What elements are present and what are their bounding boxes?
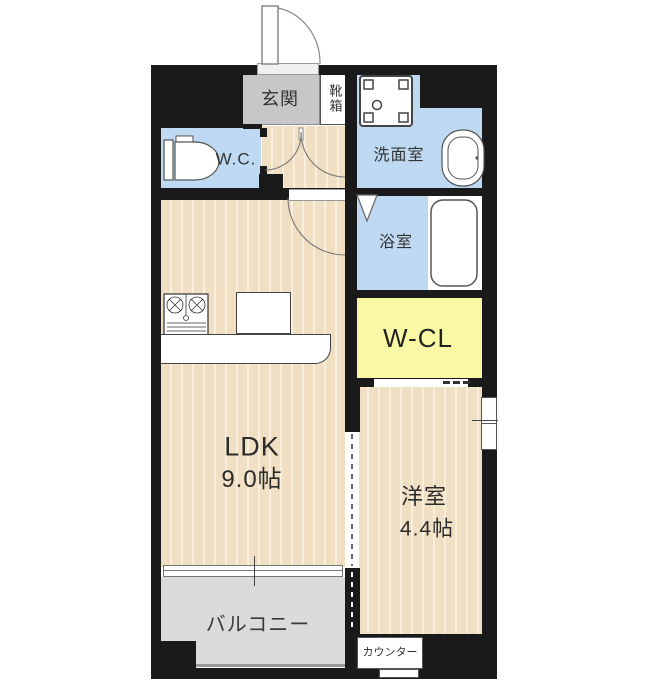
- wcl-opening-dash: [463, 381, 470, 384]
- western-room-size-label: 4.4帖: [400, 519, 454, 540]
- counter-tab: [379, 669, 419, 678]
- wall-segment: [151, 65, 161, 679]
- window-tick: [254, 556, 255, 586]
- door-swing-icon: [285, 193, 349, 259]
- ldk-label: LDK: [224, 434, 280, 461]
- bathtub-icon: [428, 197, 482, 289]
- shoe-box-label: 靴箱: [329, 84, 342, 114]
- sliding-partition-dash: [351, 434, 353, 566]
- sliding-window-icon: [163, 565, 343, 577]
- kitchen-counter: [161, 334, 331, 364]
- entrance-door-icon: [252, 2, 332, 66]
- wcl-opening-dash: [453, 381, 460, 384]
- stove-icon: [163, 293, 210, 338]
- wc-label: W.C.: [216, 151, 257, 168]
- washbasin-icon: [441, 127, 486, 189]
- wall-segment: [151, 65, 243, 128]
- sliding-window-rail: [164, 570, 342, 571]
- folding-door-icon: [356, 194, 380, 224]
- wall-segment: [357, 290, 482, 298]
- western-window-rail: [481, 423, 497, 424]
- ldk-size-label: 9.0帖: [221, 468, 282, 492]
- counter-label: カウンター: [363, 648, 418, 659]
- kitchen-sink-icon: [236, 292, 291, 334]
- window-tick: [472, 420, 498, 421]
- door-swing-icon: [258, 126, 350, 194]
- western-room-label: 洋室: [401, 486, 447, 508]
- walk-in-closet-label: W-CL: [383, 325, 453, 351]
- room-western: [358, 386, 482, 636]
- wall-segment: [151, 641, 196, 678]
- wall-segment: [243, 65, 258, 75]
- sliding-partition-dash: [351, 572, 353, 628]
- wall-segment: [345, 386, 360, 432]
- washroom-label: 洗面室: [373, 148, 424, 164]
- washing-machine-icon: [359, 75, 413, 127]
- balcony-label: バルコニー: [206, 615, 311, 635]
- wall-segment: [318, 65, 420, 75]
- genkan-label: 玄関: [261, 90, 299, 108]
- floor-plan: 玄関 靴箱 W.C. 洗面室 浴室 W-CL LDK 9.0帖 洋室 4.4帖 …: [0, 0, 646, 682]
- wcl-opening-dash: [443, 381, 450, 384]
- bathroom-label: 浴室: [379, 235, 413, 251]
